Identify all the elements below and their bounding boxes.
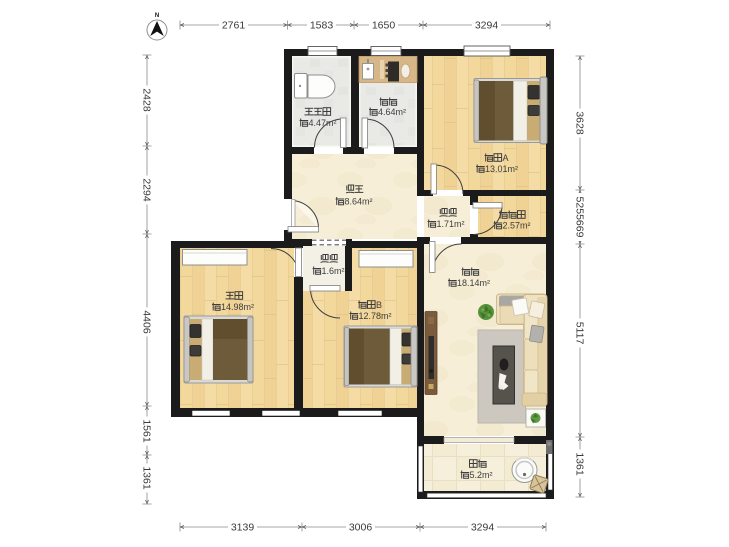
svg-text:1.71m²: 1.71m² <box>437 219 465 229</box>
svg-text:N: N <box>155 13 159 19</box>
svg-text:2428: 2428 <box>141 88 153 112</box>
svg-text:2761: 2761 <box>222 20 246 32</box>
svg-text:3628: 3628 <box>574 111 586 135</box>
svg-text:3294: 3294 <box>471 522 495 534</box>
svg-text:18.14m²: 18.14m² <box>457 278 490 288</box>
svg-text:1.6m²: 1.6m² <box>322 266 345 276</box>
svg-text:8.64m²: 8.64m² <box>345 197 373 207</box>
svg-text:1650: 1650 <box>372 20 396 32</box>
svg-text:2294: 2294 <box>141 178 153 202</box>
svg-text:13.01m²: 13.01m² <box>485 164 518 174</box>
svg-text:1361: 1361 <box>141 466 153 490</box>
svg-text:4.64m²: 4.64m² <box>378 107 406 117</box>
svg-text:14.98m²: 14.98m² <box>221 302 254 312</box>
svg-text:4406: 4406 <box>141 310 153 334</box>
svg-text:B: B <box>376 300 382 310</box>
svg-text:12.78m²: 12.78m² <box>359 311 392 321</box>
svg-text:2.57m²: 2.57m² <box>503 221 531 231</box>
svg-text:1583: 1583 <box>310 20 334 32</box>
svg-text:1361: 1361 <box>574 452 586 476</box>
svg-text:5255669: 5255669 <box>574 197 586 238</box>
svg-text:4.47m²: 4.47m² <box>309 118 337 128</box>
svg-text:3139: 3139 <box>231 522 255 534</box>
svg-text:1561: 1561 <box>141 419 153 443</box>
svg-text:A: A <box>503 153 509 163</box>
svg-text:3006: 3006 <box>349 522 373 534</box>
svg-text:5.2m²: 5.2m² <box>470 470 493 480</box>
svg-text:5117: 5117 <box>574 322 586 345</box>
svg-text:3294: 3294 <box>475 20 499 32</box>
